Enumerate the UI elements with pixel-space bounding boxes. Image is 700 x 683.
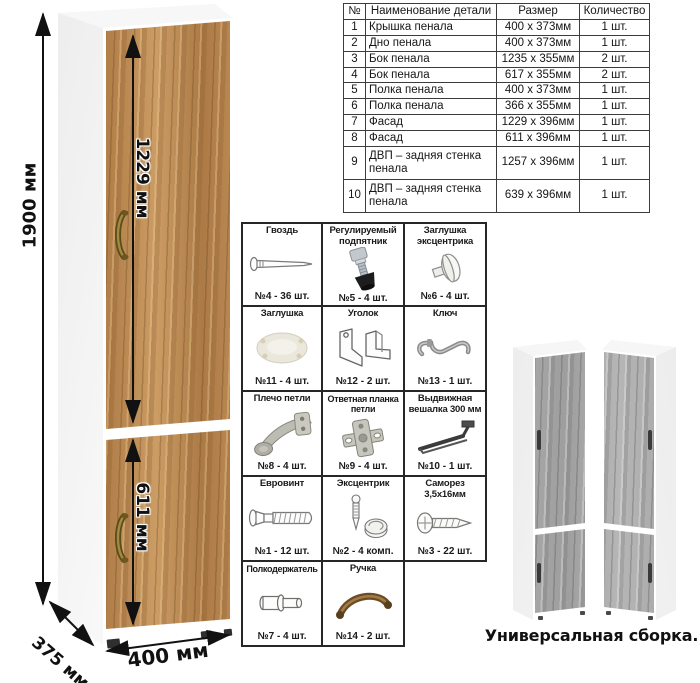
cell-qty: 1 шт.: [580, 131, 650, 147]
cell-num: 2: [344, 35, 366, 51]
hardware-title: Евровинт: [260, 479, 304, 490]
upper-door-handle: [112, 209, 132, 261]
cell-qty: 1 шт.: [580, 179, 650, 212]
euro-screw-icon: [246, 503, 318, 533]
variant-foot: [580, 611, 585, 615]
hardware-title: Ручка: [350, 564, 376, 575]
hardware-title: Заглушка: [261, 309, 304, 320]
hardware-count: №6 - 4 шт.: [420, 291, 469, 302]
self-tapping-screw-icon: [413, 506, 477, 540]
cell-size: 1235 х 355мм: [497, 51, 580, 67]
hardware-count: №14 - 2 шт.: [336, 631, 391, 642]
hardware-title: Ответная планка петли: [324, 394, 402, 414]
hardware-count: №2 - 4 комп.: [332, 546, 393, 557]
hardware-cell-shelf-pin: Полкодержатель №7 - 4 шт.: [241, 562, 323, 647]
hardware-count: №9 - 4 шт.: [338, 461, 387, 472]
cell-qty: 1 шт.: [580, 146, 650, 179]
table-row: 9 ДВП – задняя стенка пенала 1257 х 396м…: [344, 146, 650, 179]
cell-qty: 1 шт.: [580, 115, 650, 131]
hardware-count: №8 - 4 шт.: [257, 461, 306, 472]
cam-lock-icon: [332, 494, 394, 542]
cell-size: 400 х 373мм: [497, 19, 580, 35]
cell-qty: 1 шт.: [580, 35, 650, 51]
cell-size: 366 х 355мм: [497, 99, 580, 115]
handle-icon: [331, 582, 395, 624]
cell-size: 400 х 373мм: [497, 83, 580, 99]
hardware-cell-plug: Заглушка №11 - 4 шт.: [241, 307, 323, 392]
cell-num: 5: [344, 83, 366, 99]
hardware-count: №1 - 12 шт.: [255, 546, 310, 557]
caption-universal-assembly: Универсальная сборка.: [483, 626, 700, 645]
pullout-hanger-icon: [412, 419, 478, 457]
hardware-title: Выдвижная вешалка 300 мм: [406, 394, 484, 415]
cell-size: 400 х 373мм: [497, 35, 580, 51]
adjustable-foot-icon: [333, 247, 393, 293]
cell-size: 1257 х 396мм: [497, 146, 580, 179]
cell-qty: 2 шт.: [580, 67, 650, 83]
cell-name: Крышка пенала: [366, 19, 497, 35]
col-header-name: Наименование детали: [366, 4, 497, 20]
hardware-count: №10 - 1 шт.: [418, 461, 473, 472]
variant-handle: [648, 430, 652, 450]
cell-num: 9: [344, 146, 366, 179]
cell-num: 10: [344, 179, 366, 212]
cell-num: 1: [344, 19, 366, 35]
hardware-count: №12 - 2 шт.: [336, 376, 391, 387]
hardware-cell-pullout-hanger: Выдвижная вешалка 300 мм №10 - 1 шт.: [405, 392, 487, 477]
dimension-height-label: 1900 мм: [20, 160, 41, 252]
hardware-count: №3 - 22 шт.: [418, 546, 473, 557]
cell-num: 3: [344, 51, 366, 67]
hardware-cell-adjustable-foot: Регулируемый подпятник №5 - 4 шт.: [323, 222, 405, 307]
cell-name: Полка пенала: [366, 99, 497, 115]
hardware-cell-handle: Ручка №14 - 2 шт.: [323, 562, 405, 647]
variant-foot: [606, 611, 611, 615]
plug-icon: [251, 328, 313, 368]
hardware-title: Саморез 3,5х16мм: [406, 479, 484, 500]
hardware-cell-cam-cover: Заглушка эксцентрика №6 - 4 шт.: [405, 222, 487, 307]
col-header-number: №: [344, 4, 366, 20]
table-row: 7 Фасад 1229 х 396мм 1 шт.: [344, 115, 650, 131]
cell-name: Дно пенала: [366, 35, 497, 51]
hardware-count: №7 - 4 шт.: [257, 631, 306, 642]
dimension-lower-door-label: 611 мм: [132, 479, 152, 555]
cell-name: Фасад: [366, 131, 497, 147]
cell-size: 611 х 396мм: [497, 131, 580, 147]
table-row: 8 Фасад 611 х 396мм 1 шт.: [344, 131, 650, 147]
variant-handle: [648, 563, 652, 583]
cabinet-foot: [107, 638, 121, 648]
hardware-cell-key: Ключ №13 - 1 шт.: [405, 307, 487, 392]
cell-name: ДВП – задняя стенка пенала: [366, 179, 497, 212]
parts-table-header-row: № Наименование детали Размер Количество: [344, 4, 650, 20]
cam-cover-icon: [417, 247, 473, 291]
lower-door-handle: [112, 512, 132, 564]
cell-qty: 2 шт.: [580, 51, 650, 67]
hardware-count: №11 - 4 шт.: [255, 376, 309, 387]
hardware-title: Уголок: [348, 309, 378, 320]
col-header-quantity: Количество: [580, 4, 650, 20]
hardware-title: Гвоздь: [266, 226, 298, 237]
cell-num: 6: [344, 99, 366, 115]
cell-size: 1229 х 396мм: [497, 115, 580, 131]
hardware-title: Заглушка эксцентрика: [406, 226, 484, 247]
variant-handle: [537, 563, 541, 583]
hardware-title: Ключ: [433, 309, 457, 320]
parts-table: № Наименование детали Размер Количество …: [343, 3, 650, 213]
cell-qty: 1 шт.: [580, 83, 650, 99]
hardware-cell-nail: Гвоздь №4 - 36 шт.: [241, 222, 323, 307]
hardware-grid: Гвоздь №4 - 36 шт. Регулируемый подпятни…: [241, 222, 487, 647]
hinge-plate-icon: [333, 417, 393, 459]
hardware-cell-euro-screw: Евровинт №1 - 12 шт.: [241, 477, 323, 562]
cell-size: 617 х 355мм: [497, 67, 580, 83]
cell-name: ДВП – задняя стенка пенала: [366, 146, 497, 179]
hardware-cell-cam-lock: Эксцентрик №2 - 4 комп.: [323, 477, 405, 562]
col-header-size: Размер: [497, 4, 580, 20]
cell-name: Полка пенала: [366, 83, 497, 99]
cell-name: Бок пенала: [366, 67, 497, 83]
nail-icon: [247, 250, 317, 278]
cell-name: Бок пенала: [366, 51, 497, 67]
corner-bracket-icon: [332, 326, 394, 370]
hardware-title: Эксцентрик: [337, 479, 390, 490]
cell-size: 639 х 396мм: [497, 179, 580, 212]
variant-foot: [538, 616, 543, 620]
hardware-cell-hinge-plate: Ответная планка петли №9 - 4 шт.: [323, 392, 405, 477]
hardware-count: №5 - 4 шт.: [338, 293, 387, 304]
table-row: 6 Полка пенала 366 х 355мм 1 шт.: [344, 99, 650, 115]
variant-handle: [537, 430, 541, 450]
hardware-count: №4 - 36 шт.: [255, 291, 310, 302]
shelf-pin-icon: [254, 589, 310, 617]
table-row: 3 Бок пенала 1235 х 355мм 2 шт.: [344, 51, 650, 67]
table-row: 5 Полка пенала 400 х 373мм 1 шт.: [344, 83, 650, 99]
table-row: 2 Дно пенала 400 х 373мм 1 шт.: [344, 35, 650, 51]
cell-qty: 1 шт.: [580, 99, 650, 115]
table-row: 4 Бок пенала 617 х 355мм 2 шт.: [344, 67, 650, 83]
cell-qty: 1 шт.: [580, 19, 650, 35]
cell-num: 8: [344, 131, 366, 147]
cell-num: 7: [344, 115, 366, 131]
variant-cabinets: [505, 335, 680, 627]
hardware-count: №13 - 1 шт.: [418, 376, 473, 387]
cabinet-illustration: [55, 3, 239, 675]
hardware-cell-corner-bracket: Уголок №12 - 2 шт.: [323, 307, 405, 392]
variant-foot: [648, 616, 653, 620]
table-row: 1 Крышка пенала 400 х 373мм 1 шт.: [344, 19, 650, 35]
hardware-cell-hinge-arm: Плечо петли №8 - 4 шт.: [241, 392, 323, 477]
dimension-upper-door-label: 1229 мм: [132, 135, 152, 221]
cell-name: Фасад: [366, 115, 497, 131]
hardware-title: Плечо петли: [254, 394, 311, 405]
cell-num: 4: [344, 67, 366, 83]
table-row: 10 ДВП – задняя стенка пенала 639 х 396м…: [344, 179, 650, 212]
hardware-cell-self-tapping-screw: Саморез 3,5х16мм №3 - 22 шт.: [405, 477, 487, 562]
hinge-arm-icon: [249, 410, 315, 456]
assembly-sheet: 1900 мм 1229 мм 611 мм 400 мм 375 мм № Н…: [0, 0, 700, 683]
hardware-title: Полкодержатель: [246, 564, 317, 574]
hardware-title: Регулируемый подпятник: [324, 226, 402, 247]
key-icon: [414, 328, 476, 368]
